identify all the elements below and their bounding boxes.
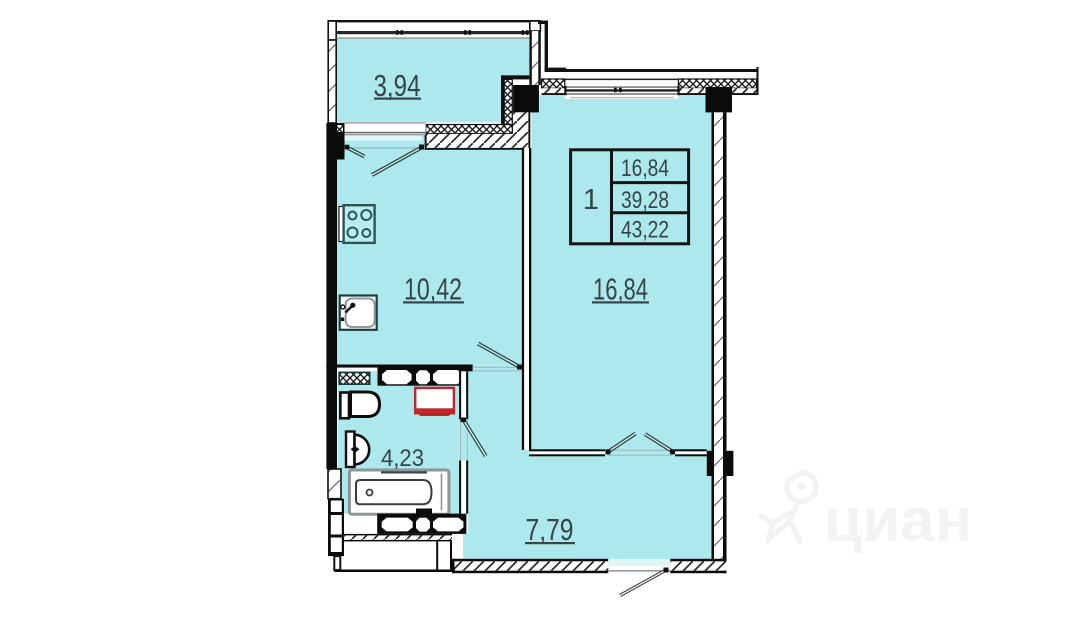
svg-text:4,23: 4,23 [381, 445, 424, 472]
svg-text:39,28: 39,28 [621, 187, 669, 214]
svg-text:циан: циан [824, 486, 972, 555]
svg-text:16,84: 16,84 [593, 272, 648, 307]
svg-text:7,79: 7,79 [526, 512, 574, 547]
svg-text:10,42: 10,42 [404, 272, 462, 307]
svg-text:16,84: 16,84 [621, 155, 669, 182]
svg-text:43,22: 43,22 [621, 217, 669, 244]
svg-text:1: 1 [583, 184, 599, 216]
